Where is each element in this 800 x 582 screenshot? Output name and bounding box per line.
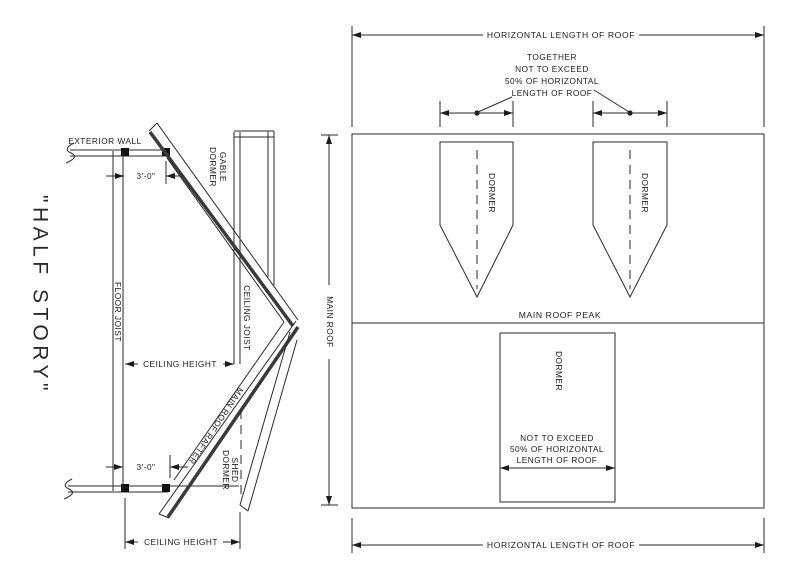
leader-line xyxy=(594,90,629,112)
shed-note-line2: 50% OF HORIZONTAL xyxy=(510,444,604,454)
arrowhead-left xyxy=(500,465,509,471)
together-note-line3: 50% OF HORIZONTAL xyxy=(505,76,599,86)
together-note: TOGETHER NOT TO EXCEED 50% OF HORIZONTAL… xyxy=(474,52,632,116)
arrowhead-down xyxy=(326,496,332,505)
exterior-wall-top xyxy=(66,143,170,163)
arrowhead-right xyxy=(755,32,764,38)
floor-joist-label: FLOOR JOIST xyxy=(113,282,123,342)
ceiling-height-dim-bottom-text: CEILING HEIGHT xyxy=(144,537,218,547)
arrowhead-left xyxy=(352,542,361,548)
together-note-line1: TOGETHER xyxy=(527,52,577,62)
main-roof-rafter-label: MAIN ROOF RAFTER xyxy=(187,386,246,467)
arrowhead-right xyxy=(114,464,123,470)
arrowhead-left xyxy=(170,464,179,470)
shed-note-line1: NOT TO EXCEED xyxy=(520,433,594,443)
shed-rafter-foot xyxy=(240,505,248,511)
arrowhead-right xyxy=(504,110,513,116)
leader-line xyxy=(478,97,512,112)
rafter-inner-line xyxy=(167,158,284,322)
plan-dormer-right: DORMER xyxy=(593,142,667,297)
section-view: EXTERIOR WALL FLOOR JOIST CEILING JOIST xyxy=(64,123,298,549)
shed-rafter-line xyxy=(240,332,290,505)
roof-plan-view: MAIN ROOF PEAK HORIZONTAL LENGTH OF ROOF… xyxy=(321,26,764,553)
horizontal-length-top-text: HORIZONTAL LENGTH OF ROOF xyxy=(487,30,635,40)
exterior-wall-bottom xyxy=(64,479,239,499)
plan-dormer-left: DORMER xyxy=(440,142,513,297)
plan-dormer-left-label: DORMER xyxy=(487,173,497,213)
arrowhead-right xyxy=(225,361,234,367)
horizontal-length-bottom-text: HORIZONTAL LENGTH OF ROOF xyxy=(487,540,635,550)
together-note-line4: LENGTH OF ROOF xyxy=(512,88,593,98)
plan-shed-dormer: DORMER NOT TO EXCEED 50% OF HORIZONTAL L… xyxy=(500,333,615,502)
shed-dormer-label-line2: DORMER xyxy=(221,450,231,490)
together-note-line2: NOT TO EXCEED xyxy=(515,64,589,74)
arrowhead-right xyxy=(755,542,764,548)
arrowhead-left xyxy=(352,32,361,38)
break-squiggle xyxy=(64,479,73,499)
arrowhead-left xyxy=(166,173,175,179)
half-story-drawing: "HALF STORY" EXTERIOR WALL FLOOR JOIST xyxy=(0,0,800,582)
break-squiggle xyxy=(66,143,75,163)
drawing-canvas: "HALF STORY" EXTERIOR WALL FLOOR JOIST xyxy=(0,0,800,582)
ceiling-joist-label: CEILING JOIST xyxy=(242,285,252,351)
plan-dormer-right-label: DORMER xyxy=(640,173,650,213)
knee-wall-dim-bottom: 3'-0" xyxy=(106,455,188,478)
gable-dormer-label-line1: GABLE xyxy=(218,152,228,182)
arrowhead-right xyxy=(231,539,240,545)
knee-wall-dim-top-text: 3'-0" xyxy=(136,171,155,181)
plate-square xyxy=(162,484,170,492)
horizontal-length-dim-bottom: HORIZONTAL LENGTH OF ROOF xyxy=(352,518,764,553)
arrowhead-left xyxy=(125,539,134,545)
main-roof-dim-text: MAIN ROOF xyxy=(325,296,335,348)
arrowhead-left xyxy=(593,110,602,116)
knee-wall-dim-bottom-text: 3'-0" xyxy=(136,462,155,472)
drawing-title: "HALF STORY" xyxy=(29,195,52,395)
main-roof-dim: MAIN ROOF xyxy=(321,135,338,505)
ceiling-height-dim-bottom: CEILING HEIGHT xyxy=(125,498,240,549)
arrowhead-left xyxy=(440,110,449,116)
rafter-bevel xyxy=(149,123,157,131)
main-roof-peak-label: MAIN ROOF PEAK xyxy=(519,310,601,320)
rafter-thick-line xyxy=(168,327,298,517)
ceiling-height-dim-top-text: CEILING HEIGHT xyxy=(143,359,217,369)
gable-dormer-label-line2: DORMER xyxy=(208,147,218,187)
shed-note-line3: LENGTH OF ROOF xyxy=(517,455,598,465)
arrowhead-right xyxy=(606,465,615,471)
plan-shed-dormer-label: DORMER xyxy=(554,351,564,391)
shed-dormer-outline xyxy=(240,332,297,511)
arrowhead-left xyxy=(125,361,134,367)
ceiling-height-dim-top: CEILING HEIGHT xyxy=(125,357,234,370)
plate-square xyxy=(121,148,129,156)
arrowhead-right xyxy=(658,110,667,116)
exterior-wall-label: EXTERIOR WALL xyxy=(68,136,142,146)
arrowhead-up xyxy=(326,135,332,144)
plate-square xyxy=(121,484,129,492)
